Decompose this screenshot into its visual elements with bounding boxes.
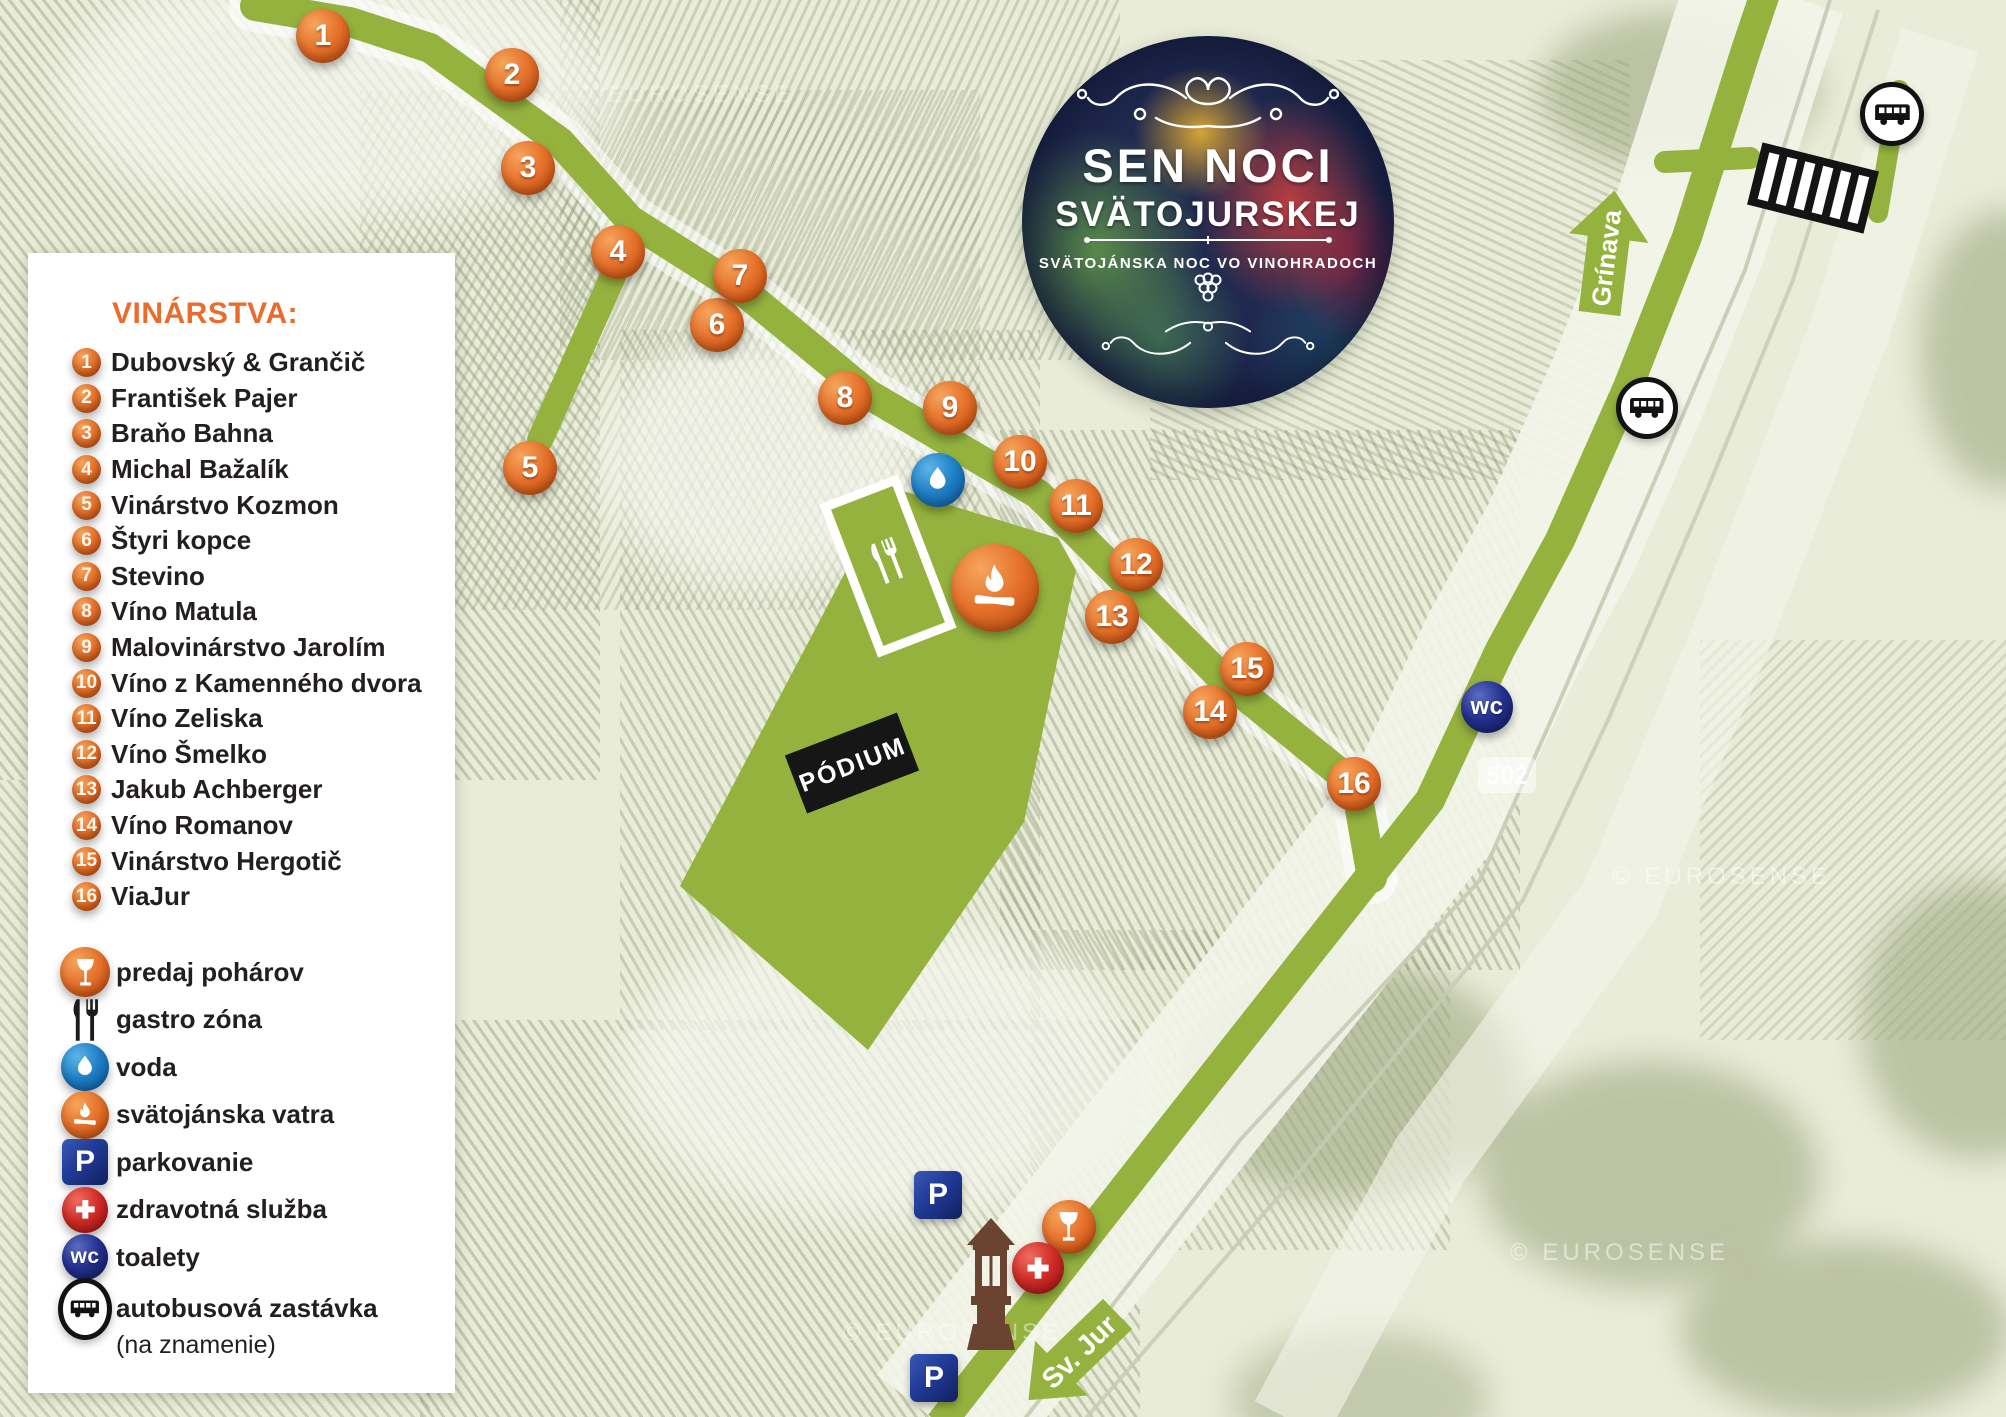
winery-marker: 5 [503,441,557,495]
winery-number-badge: 4 [72,455,101,484]
winery-list: 1 Dubovský & Grančič 2 František Pajer 3… [58,345,445,915]
winery-name: Michal Bažalík [111,454,289,485]
road-number: 502 [1486,762,1528,790]
winery-marker-number: 8 [837,381,854,415]
logo-divider [1083,235,1333,245]
winery-marker: 6 [690,298,744,352]
winery-marker-number: 12 [1119,548,1152,582]
wc-icon: wc [1461,681,1513,733]
winery-name: Víno Matula [111,596,257,627]
winery-number-badge: 9 [72,633,101,662]
winery-marker: 9 [923,381,977,435]
winery-list-item: 7 Stevino [58,559,445,595]
parking-icon: P [910,1354,958,1402]
legend-service-row: gastro zóna [58,996,445,1044]
legend-service-row: predaj pohárov [58,949,445,997]
winery-marker-number: 13 [1095,600,1128,634]
watermark: © EUROSENSE [575,81,794,108]
winery-name: ViaJur [111,881,190,912]
legend-service-row: zdravotná služba [58,1186,445,1234]
winery-name: Víno z Kamenného dvora [111,668,422,699]
winery-marker: 12 [1109,538,1163,592]
winery-name: Jakub Achberger [111,774,322,805]
grape-cluster-icon [1186,272,1230,306]
logo-title-line1: SEN NOCI [1082,138,1333,193]
bus-stop-icon [58,1278,112,1340]
winery-name: Vinárstvo Kozmon [111,490,339,521]
winery-marker: 3 [501,141,555,195]
legend-title: VINÁRSTVA: [112,297,445,331]
bonfire-icon [951,544,1039,632]
cutlery-icon [68,998,102,1042]
winery-name: Vinárstvo Hergotič [111,846,342,877]
winery-number-badge: 14 [72,811,101,840]
winery-list-item: 8 Víno Matula [58,594,445,630]
parking-icon: P [914,1171,962,1219]
water-point-icon [911,453,965,507]
winery-marker: 4 [591,225,645,279]
winery-number-badge: 8 [72,597,101,626]
winery-name: Braňo Bahna [111,418,273,449]
winery-list-item: 4 Michal Bažalík [58,452,445,488]
winery-name: Víno Šmelko [111,739,267,770]
winery-number-badge: 1 [72,348,101,377]
winery-marker: 1 [296,9,350,63]
service-label: parkovanie [116,1147,253,1178]
winery-number-badge: 16 [72,882,101,911]
winery-marker-number: 1 [315,19,332,53]
winery-marker: 10 [993,435,1047,489]
watermark: © EUROSENSE [1510,1239,1729,1266]
event-map-poster: PÓDIUM Grínava Sv. Jur 502 © EUROSENSE [0,0,2006,1417]
wc-icon: wc [62,1234,108,1280]
winery-marker-number: 10 [1003,445,1036,479]
winery-number-badge: 3 [72,419,101,448]
winery-marker-number: 14 [1193,695,1226,729]
ornament-flourish [1068,312,1348,372]
parking-label: P [924,1361,944,1395]
winery-list-item: 5 Vinárstvo Kozmon [58,487,445,523]
winery-name: Malovinárstvo Jarolím [111,632,386,663]
winery-marker-number: 4 [610,235,627,269]
water-drop-icon [61,1043,109,1091]
logo-title-line2: SVÄTOJURSKEJ [1055,195,1360,235]
legend-service-row: P parkovanie [58,1139,445,1187]
winery-marker-number: 3 [520,151,537,185]
service-label: toalety [116,1242,200,1273]
winery-number-badge: 5 [72,491,101,520]
parking-icon: P [62,1139,108,1185]
winery-marker: 8 [818,371,872,425]
service-label: voda [116,1052,177,1083]
winery-list-item: 2 František Pajer [58,381,445,417]
legend-service-row: voda [58,1044,445,1092]
winery-name: Stevino [111,561,205,592]
winery-marker: 7 [713,249,767,303]
wc-label: wc [1470,693,1503,721]
watermark: © EUROSENSE [843,1319,1062,1346]
service-label: predaj pohárov [116,957,304,988]
winery-number-badge: 15 [72,847,101,876]
legend-service-row: wc toalety [58,1234,445,1282]
legend-panel: VINÁRSTVA: 1 Dubovský & Grančič 2 Franti… [28,253,455,1393]
winery-list-item: 10 Víno z Kamenného dvora [58,665,445,701]
winery-list-item: 13 Jakub Achberger [58,772,445,808]
legend-service-row: autobusová zastávka [58,1285,445,1333]
logo-subtitle: SVÄTOJÁNSKA NOC VO VINOHRADOCH [1039,255,1377,272]
winery-number-badge: 10 [72,669,101,698]
service-label: autobusová zastávka [116,1293,378,1324]
legend-service-row: svätojánska vatra [58,1091,445,1139]
winery-list-item: 12 Víno Šmelko [58,737,445,773]
winery-marker-number: 5 [522,451,539,485]
winery-marker-number: 11 [1060,489,1092,523]
event-logo: SEN NOCI SVÄTOJURSKEJ SVÄTOJÁNSKA NOC VO… [1022,36,1394,408]
winery-marker-number: 16 [1337,767,1370,801]
medical-cross-icon [1012,1242,1064,1294]
winery-list-item: 14 Víno Romanov [58,808,445,844]
watchtower-icon [963,1218,1019,1350]
winery-marker-number: 15 [1230,652,1263,686]
bus-stop-icon [1860,82,1924,146]
ornament-flourish [1068,62,1348,136]
medical-cross-icon [62,1187,108,1233]
winery-name: Víno Romanov [111,810,293,841]
wine-glass-icon [60,947,110,997]
service-sublabel: (na znamenie) [116,1331,445,1360]
winery-name: Štyri kopce [111,525,251,556]
winery-marker: 15 [1220,642,1274,696]
watermark: © EUROSENSE [1612,863,1831,890]
winery-marker-number: 9 [942,391,959,425]
winery-number-badge: 7 [72,562,101,591]
winery-name: Víno Zeliska [111,703,263,734]
winery-marker-number: 7 [732,259,749,293]
winery-list-item: 6 Štyri kopce [58,523,445,559]
winery-number-badge: 12 [72,740,101,769]
winery-name: Dubovský & Grančič [111,347,365,378]
winery-list-item: 15 Vinárstvo Hergotič [58,843,445,879]
winery-list-item: 9 Malovinárstvo Jarolím [58,630,445,666]
winery-number-badge: 13 [72,775,101,804]
wc-label: wc [70,1245,99,1269]
winery-list-item: 1 Dubovský & Grančič [58,345,445,381]
winery-list-item: 11 Víno Zeliska [58,701,445,737]
winery-marker: 11 [1049,479,1103,533]
service-label: svätojánska vatra [116,1099,334,1130]
winery-list-item: 3 Braňo Bahna [58,416,445,452]
parking-label: P [75,1145,95,1179]
winery-number-badge: 2 [72,384,101,413]
road-number-badge: 502 [1478,757,1536,793]
service-label: gastro zóna [116,1004,262,1035]
winery-marker: 16 [1327,757,1381,811]
winery-list-item: 16 ViaJur [58,879,445,915]
services-legend: predaj pohárov gastro zóna voda svätoján… [58,949,445,1360]
bonfire-icon [61,1091,109,1139]
winery-number-badge: 6 [72,526,101,555]
winery-marker: 14 [1183,685,1237,739]
winery-name: František Pajer [111,383,297,414]
winery-number-badge: 11 [72,704,101,733]
service-label: zdravotná služba [116,1194,327,1225]
winery-marker: 13 [1085,590,1139,644]
winery-marker-number: 2 [504,58,521,92]
bus-stop-icon [1616,377,1678,439]
winery-marker-number: 6 [709,308,726,342]
parking-label: P [928,1178,948,1212]
winery-marker: 2 [485,48,539,102]
